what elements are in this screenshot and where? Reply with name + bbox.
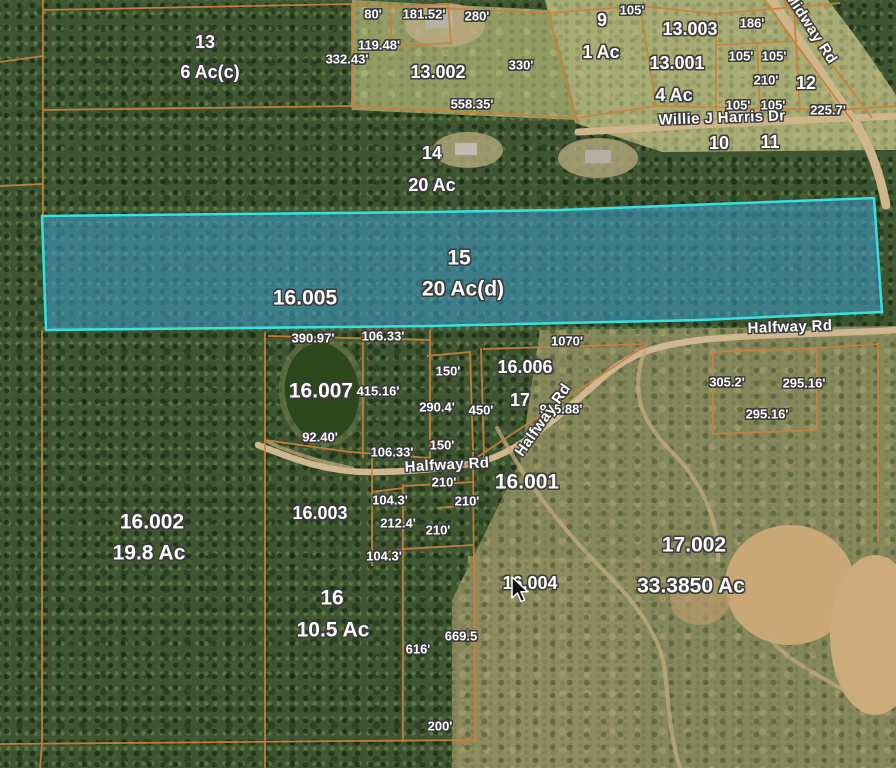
parcel-map-viewport[interactable]: 136 Ac(c)13.00291 Ac13.00313.0014 Ac1210… — [0, 0, 896, 768]
map-overlay-graphics — [0, 0, 896, 768]
bare-dirt-patches — [670, 525, 896, 715]
dirt-driveway-2 — [638, 350, 718, 560]
mouse-cursor-icon — [505, 572, 535, 606]
highlighted-parcel-15[interactable] — [42, 198, 882, 330]
pond — [273, 333, 370, 451]
